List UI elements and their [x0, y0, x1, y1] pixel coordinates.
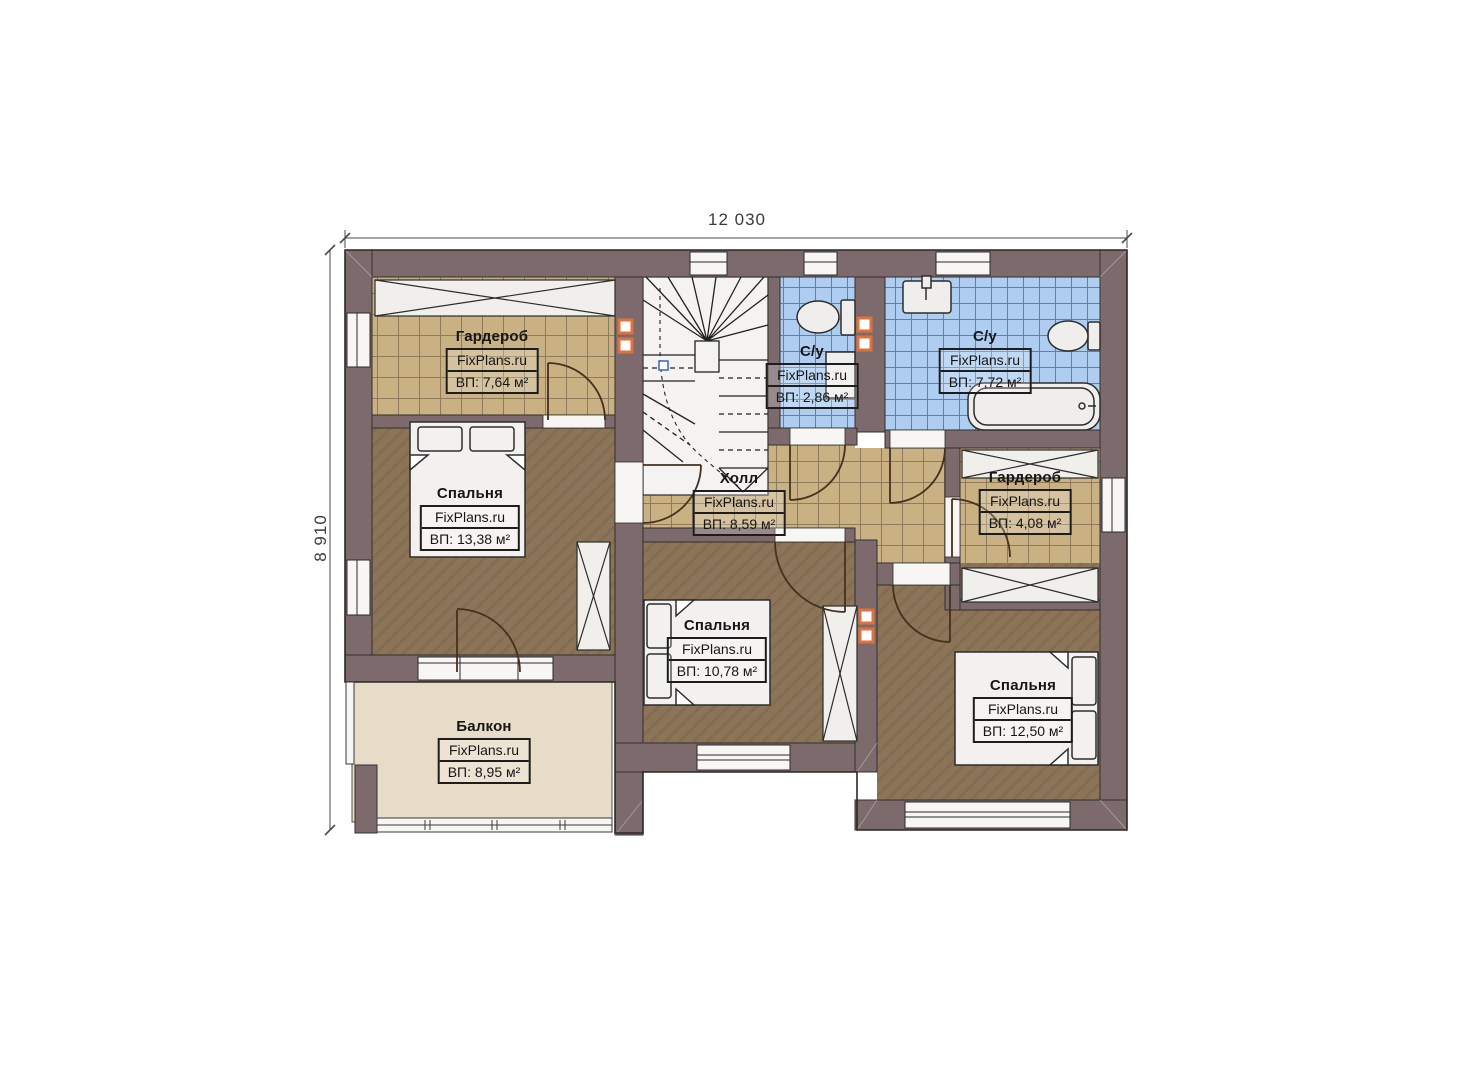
window-left-bedroom [347, 560, 370, 615]
room-info-box: FixPlans.ru ВП: 13,38 м² [420, 505, 520, 551]
wall-right [1100, 250, 1127, 830]
dimension-height-label: 8 910 [311, 514, 331, 562]
window-top-bath-small [804, 252, 837, 275]
room-name: Гардероб [446, 328, 539, 345]
room-area: ВП: 8,95 м² [440, 760, 529, 782]
room-name: Спальня [420, 485, 520, 502]
stair-marker [659, 361, 668, 370]
brand-watermark: FixPlans.ru [975, 699, 1071, 719]
door-opening-bedroom-right [893, 563, 950, 585]
brand-watermark: FixPlans.ru [440, 740, 529, 760]
room-label-wardrobe-right: Гардероб FixPlans.ru ВП: 4,08 м² [979, 469, 1072, 535]
room-label-balcony: Балкон FixPlans.ru ВП: 8,95 м² [438, 718, 531, 784]
door-opening-bedroom-left [615, 462, 643, 523]
room-info-box: FixPlans.ru ВП: 8,95 м² [438, 738, 531, 784]
closet-wardrobe-right-lower [962, 568, 1098, 602]
room-info-box: FixPlans.ru ВП: 4,08 м² [979, 489, 1072, 535]
room-area: ВП: 7,64 м² [448, 370, 537, 392]
room-name: Спальня [973, 677, 1073, 694]
shaft-bedroom-left [577, 542, 610, 650]
balcony-door-band [418, 657, 553, 680]
brand-watermark: FixPlans.ru [422, 507, 518, 527]
room-area: ВП: 2,86 м² [768, 385, 857, 407]
room-label-bathroom-large: С/у FixPlans.ru ВП: 7,72 м² [939, 328, 1032, 394]
window-bottom-bedroom-middle [697, 745, 790, 770]
sink-large-bath [903, 276, 951, 313]
room-label-bathroom-small: С/у FixPlans.ru ВП: 2,86 м² [766, 343, 859, 409]
wall-balcony-pier [355, 765, 377, 833]
room-info-box: FixPlans.ru ВП: 10,78 м² [667, 637, 767, 683]
room-area: ВП: 8,59 м² [695, 512, 784, 534]
room-info-box: FixPlans.ru ВП: 2,86 м² [766, 363, 859, 409]
floor-plan-drawing [0, 0, 1473, 1080]
window-bottom-bedroom-right [905, 802, 1070, 828]
brand-watermark: FixPlans.ru [695, 492, 784, 512]
room-name: Гардероб [979, 469, 1072, 486]
room-area: ВП: 10,78 м² [669, 659, 765, 681]
room-area: ВП: 4,08 м² [981, 511, 1070, 533]
brand-watermark: FixPlans.ru [941, 350, 1030, 370]
brand-watermark: FixPlans.ru [669, 639, 765, 659]
dimension-width-label: 12 030 [708, 210, 766, 230]
closet-wardrobe-top [375, 280, 615, 316]
room-label-wardrobe-top: Гардероб FixPlans.ru ВП: 7,64 м² [446, 328, 539, 394]
wall-right-spine [855, 540, 877, 772]
room-label-bedroom-left: Спальня FixPlans.ru ВП: 13,38 м² [420, 485, 520, 551]
room-area: ВП: 13,38 м² [422, 527, 518, 549]
room-name: Холл [693, 470, 786, 487]
room-area: ВП: 12,50 м² [975, 719, 1071, 741]
toilet-small-bath [797, 300, 855, 335]
shaft-bedroom-middle [823, 606, 857, 741]
window-right-wardrobe [1102, 478, 1125, 532]
room-name: Спальня [667, 617, 767, 634]
room-name: Балкон [438, 718, 531, 735]
window-top-stair [690, 252, 727, 275]
room-info-box: FixPlans.ru ВП: 12,50 м² [973, 697, 1073, 743]
room-name: С/у [939, 328, 1032, 345]
room-info-box: FixPlans.ru ВП: 8,59 м² [693, 490, 786, 536]
toilet-large-bath [1048, 321, 1100, 351]
door-opening-wardrobe-top [543, 415, 605, 428]
brand-watermark: FixPlans.ru [768, 365, 857, 385]
brand-watermark: FixPlans.ru [981, 491, 1070, 511]
room-label-bedroom-middle: Спальня FixPlans.ru ВП: 10,78 м² [667, 617, 767, 683]
window-top-bath-large [936, 252, 990, 275]
room-name: С/у [766, 343, 859, 360]
brand-watermark: FixPlans.ru [448, 350, 537, 370]
door-opening-bath-large [890, 430, 945, 448]
window-left-wardrobe [347, 313, 370, 367]
room-info-box: FixPlans.ru ВП: 7,64 м² [446, 348, 539, 394]
room-area: ВП: 7,72 м² [941, 370, 1030, 392]
wall-bath-divider [855, 277, 885, 432]
room-label-bedroom-right: Спальня FixPlans.ru ВП: 12,50 м² [973, 677, 1073, 743]
floor-plan: 12 030 8 910 Гардероб FixPlans.ru ВП: 7,… [0, 0, 1473, 1080]
door-opening-bedroom-middle [775, 528, 845, 542]
room-info-box: FixPlans.ru ВП: 7,72 м² [939, 348, 1032, 394]
wall-top [345, 250, 1127, 277]
room-label-hall: Холл FixPlans.ru ВП: 8,59 м² [693, 470, 786, 536]
door-opening-bath-small [790, 428, 845, 445]
